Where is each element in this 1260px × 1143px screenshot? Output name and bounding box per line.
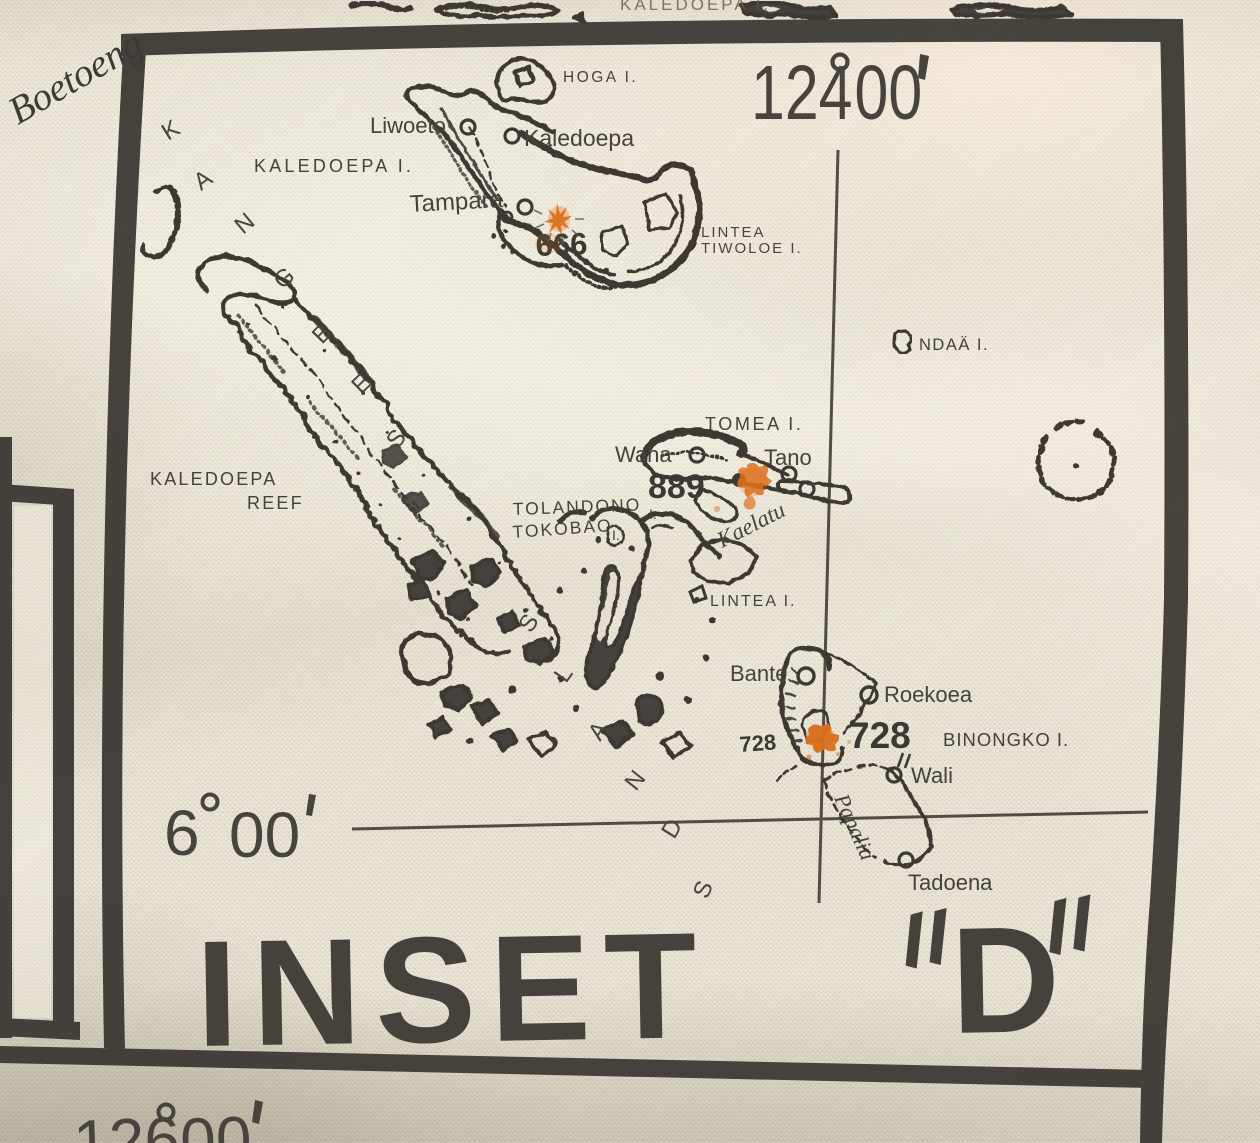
svg-text:KALEDOEPA I.: KALEDOEPA I. — [254, 156, 414, 176]
svg-text:KALEDOEPA: KALEDOEPA — [150, 469, 278, 489]
svg-text:Wali: Wali — [911, 763, 953, 788]
svg-text:BINONGKO I.: BINONGKO I. — [943, 729, 1069, 750]
svg-text:6: 6 — [164, 797, 200, 869]
svg-text:TIWOLOE I.: TIWOLOE I. — [701, 240, 803, 257]
svg-text:LINTEA I.: LINTEA I. — [710, 593, 796, 610]
svg-text:124: 124 — [751, 49, 852, 136]
svg-text:K: K — [157, 115, 185, 146]
svg-text:L: L — [549, 661, 579, 687]
svg-text:E: E — [346, 369, 376, 400]
svg-text:126: 126 — [72, 1103, 181, 1143]
svg-text:D: D — [949, 894, 1061, 1065]
svg-text:LINTEA: LINTEA — [701, 224, 766, 241]
svg-text:NDAÄ I.: NDAÄ I. — [919, 336, 989, 354]
svg-text:Waha: Waha — [615, 442, 672, 467]
svg-text:Roekoea: Roekoea — [884, 682, 973, 707]
svg-text:KALEDOEPA I.: KALEDOEPA I. — [620, 0, 771, 14]
svg-text:Tadoena: Tadoena — [908, 870, 993, 895]
svg-text:I.: I. — [649, 506, 657, 522]
svg-text:D: D — [656, 814, 688, 843]
svg-text:00: 00 — [854, 49, 922, 136]
svg-text:S: S — [688, 877, 719, 903]
svg-text:B: B — [307, 319, 338, 349]
svg-text:Papalia: Papalia — [829, 789, 881, 864]
svg-text:00: 00 — [179, 1103, 253, 1143]
svg-text:Kaledoepa: Kaledoepa — [524, 125, 634, 151]
svg-text:TOMEA I.: TOMEA I. — [705, 414, 804, 434]
svg-text:N: N — [619, 765, 651, 795]
svg-text:728: 728 — [739, 729, 777, 757]
svg-text:Bante: Bante — [730, 661, 788, 686]
svg-text:REEF: REEF — [247, 493, 304, 513]
svg-text:INSET: INSET — [195, 900, 713, 1078]
svg-text:HOGA I.: HOGA I. — [563, 69, 638, 86]
svg-text:A: A — [189, 165, 218, 196]
svg-text:889: 889 — [648, 468, 705, 506]
svg-text:Liwoeto: Liwoeto — [370, 113, 446, 138]
svg-text:TOLANDONO: TOLANDONO — [512, 495, 641, 519]
svg-text:728: 728 — [849, 715, 911, 756]
svg-text:I.: I. — [612, 527, 620, 543]
svg-text:Tampara: Tampara — [409, 186, 504, 218]
svg-text:00: 00 — [229, 799, 300, 871]
svg-text:N: N — [230, 208, 261, 240]
